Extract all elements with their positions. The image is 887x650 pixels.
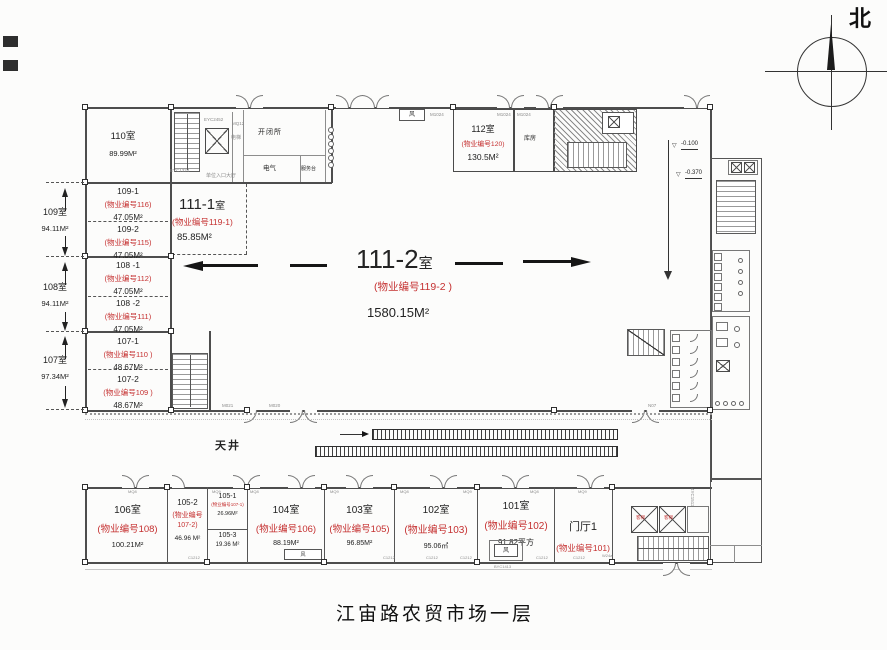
- room-area: 26.96M²: [208, 511, 247, 517]
- dim-area: 94.11M²: [30, 299, 80, 308]
- dim-arrow-up: [62, 188, 68, 197]
- room-area: 96.85M²: [325, 540, 394, 547]
- door-arc: [663, 563, 676, 576]
- dim-108-labels: 108室 94.11M²: [30, 280, 80, 312]
- room-area: 47.05M²: [88, 213, 168, 222]
- extent-arrow-left: [183, 261, 203, 271]
- dim-name: 107室: [30, 353, 80, 366]
- column: [328, 104, 334, 110]
- window-mark: C1212: [536, 556, 548, 561]
- sink: [739, 401, 744, 406]
- door-arc: [288, 475, 301, 488]
- room-area: 95.06㎡: [395, 541, 477, 551]
- compass-crosshair: [765, 71, 887, 72]
- staircase: [716, 180, 756, 234]
- door-arc: [677, 563, 690, 576]
- room-name: 111-1: [179, 196, 215, 213]
- courtyard-label: 天井: [215, 440, 241, 453]
- sink: [715, 401, 720, 406]
- wall: [85, 562, 712, 564]
- column: [82, 104, 88, 110]
- storage-label: 库房: [524, 136, 536, 143]
- hall-name: 111-2室: [356, 245, 433, 275]
- toilet-stall: [714, 273, 722, 281]
- vent-box: 风: [284, 549, 322, 560]
- dim-name: 108室: [30, 280, 80, 293]
- sink: [738, 258, 743, 263]
- toilet-stall: [672, 370, 680, 378]
- column: [450, 104, 456, 110]
- toilet-stall: [714, 263, 722, 271]
- fixture-circle: [328, 162, 334, 168]
- room-name-suffix: 室: [215, 201, 225, 212]
- column: [168, 328, 174, 334]
- dim-area: 94.11M²: [30, 224, 80, 233]
- window-mark: 4YC1512: [690, 488, 695, 507]
- door-mark: MQ9: [330, 490, 339, 495]
- wall: [85, 107, 87, 412]
- room-105-2-labels: 105-2 (物业编号107-2) 46.96 M²: [168, 498, 207, 546]
- window-mark: BYC1413: [494, 565, 511, 570]
- fixture-circle: [328, 155, 334, 161]
- dim-name: 109室: [30, 205, 80, 218]
- extent-arrow-line: [202, 264, 258, 267]
- sink: [738, 280, 743, 285]
- column: [321, 484, 327, 490]
- door-arc: [591, 475, 604, 488]
- room-name: 104室: [248, 501, 324, 516]
- column: [609, 559, 615, 565]
- door-arc: [362, 95, 375, 108]
- wall: [85, 410, 712, 412]
- room-112-labels: 112室 (物业编号120) 130.5M²: [453, 124, 513, 166]
- room-name: 107-1: [88, 336, 168, 346]
- door-mark: MQ8: [250, 490, 259, 495]
- north-label: 北: [849, 6, 871, 31]
- room-name: 101室: [478, 497, 554, 512]
- room-name: 109-2: [88, 224, 168, 234]
- wall: [85, 182, 332, 184]
- column: [244, 407, 250, 413]
- prop-number: (物业编号105): [325, 521, 394, 535]
- window-mark: C1212: [573, 556, 585, 561]
- vent-box: 风: [494, 544, 518, 557]
- prop-number: (物业编号107-1): [208, 502, 247, 508]
- toilet-stall: [714, 253, 722, 261]
- room-110-labels: 110室 89.99M²: [88, 128, 158, 162]
- sink: [734, 342, 740, 348]
- room-109-1-labels: 109-1 (物业编号116) 47.05M²: [88, 186, 168, 226]
- door-arc: [646, 410, 659, 423]
- door-arc: [304, 410, 317, 423]
- room-area: 46.96 M²: [168, 535, 207, 542]
- room-108-1-labels: 108 -1 (物业编号112) 47.05M²: [88, 260, 168, 300]
- fixture: [716, 338, 728, 347]
- door-arc: [172, 475, 185, 488]
- room-name: 111-2: [356, 244, 419, 274]
- unit-divider: [246, 184, 247, 254]
- door-arc: [632, 410, 645, 423]
- room-name: 109-1: [88, 186, 168, 196]
- room-105-3-labels: 105-3 19.36 M²: [208, 532, 247, 552]
- column: [168, 253, 174, 259]
- prop-number: (物业编号106): [248, 521, 324, 535]
- lobby-labels: 门厅1 (物业编号101): [551, 518, 615, 558]
- shaft-box: [744, 162, 755, 173]
- dim-area: 97.34M²: [30, 372, 80, 381]
- prop-number: (物业编号119-2 ): [374, 281, 452, 293]
- fixture-circle: [328, 134, 334, 140]
- flow-arrow-head: [664, 271, 672, 280]
- entrance-hall-label: 单位入口大厅: [206, 174, 236, 180]
- toilet-stall: [672, 382, 680, 390]
- toilet-stall: [714, 283, 722, 291]
- sink: [738, 291, 743, 296]
- dim-tick: [46, 256, 84, 257]
- prop-number: (物业编号102): [478, 517, 554, 532]
- room-area: 130.5M²: [453, 152, 513, 162]
- room-107-2-labels: 107-2 (物业编号109 ) 48.67M²: [88, 374, 168, 414]
- column: [164, 484, 170, 490]
- door-mark: N07: [648, 403, 656, 408]
- door-arc: [290, 410, 303, 423]
- dim-arrow-down: [62, 322, 68, 331]
- prop-number: (物业编号107-2): [168, 511, 207, 531]
- room-name: 105-2: [168, 498, 207, 507]
- wall: [243, 155, 325, 156]
- room-area: 85.85M²: [177, 233, 212, 244]
- dim-107-labels: 107室 97.34M²: [30, 353, 80, 385]
- wall: [710, 545, 762, 546]
- room-area: 19.36 M²: [208, 542, 247, 548]
- window-mark: C1212: [426, 556, 438, 561]
- prop-number: (物业编号115): [88, 237, 168, 248]
- dim-tick: [46, 182, 84, 183]
- sink: [731, 401, 736, 406]
- window-mark: C1212: [188, 556, 200, 561]
- door-arc: [516, 475, 529, 488]
- flow-arrow-line: [668, 140, 669, 272]
- escalator-arrow-line: [340, 434, 362, 435]
- room-area: 48.67M²: [88, 401, 168, 410]
- prop-number: (物业编号108): [88, 521, 167, 535]
- scan-mark: [3, 36, 18, 47]
- prop-number: (物业编号103): [395, 521, 477, 536]
- scan-mark: [3, 60, 18, 71]
- wall: [734, 545, 735, 563]
- window-mark: C1212: [383, 556, 395, 561]
- vent-label: 风: [409, 112, 415, 118]
- prop-number: (物业编号109 ): [88, 387, 168, 398]
- room-103-labels: 103室 (物业编号105) 96.85M²: [325, 501, 394, 551]
- room-name-suffix: 室: [419, 255, 433, 271]
- elevation-marker-icon: ▽: [672, 143, 677, 150]
- column: [609, 484, 615, 490]
- door-arc: [302, 475, 315, 488]
- extent-dash: [455, 262, 503, 265]
- room-109-2-labels: 109-2 (物业编号115) 47.05M²: [88, 224, 168, 264]
- escalator-arrow-head: [362, 431, 369, 437]
- room-area: 47.05M²: [88, 287, 168, 296]
- dim-arrow-down: [62, 399, 68, 408]
- room-name: 110室: [88, 128, 158, 142]
- wall: [85, 487, 87, 563]
- column: [474, 484, 480, 490]
- wall: [207, 529, 247, 530]
- elevation-marker-icon: ▽: [676, 172, 681, 179]
- extent-arrow-right: [571, 257, 591, 267]
- room-106-labels: 106室 (物业编号108) 100.21M²: [88, 501, 167, 553]
- door-mark: M021: [222, 403, 233, 408]
- elevator-shaft: [608, 116, 620, 128]
- shaft-box: [716, 360, 730, 372]
- dim-tick: [46, 409, 84, 410]
- column: [321, 559, 327, 565]
- prop-number: (物业编号119-1): [172, 218, 233, 228]
- door-mark: M1024: [517, 112, 531, 117]
- sink: [734, 326, 740, 332]
- room-name: 105-3: [208, 532, 247, 539]
- door-arc: [122, 475, 135, 488]
- room-105-1-labels: 105-1 (物业编号107-1) 26.96M²: [208, 493, 247, 521]
- wall: [209, 331, 211, 411]
- extent-arrow-line: [523, 260, 573, 263]
- room-102-labels: 102室 (物业编号103) 95.06㎡: [395, 501, 477, 555]
- fixture-circle: [328, 148, 334, 154]
- fixture-circle: [328, 141, 334, 147]
- switch-station-label: 开闭所: [258, 129, 282, 137]
- dim-line: [65, 386, 66, 400]
- stair-diagonal: [628, 330, 664, 355]
- prop-number: (物业编号112): [88, 273, 168, 284]
- door-arc: [236, 95, 249, 108]
- door-arc: [536, 95, 549, 108]
- door-mark: MQ9: [463, 490, 472, 495]
- dim-arrow-up: [62, 336, 68, 345]
- column: [168, 407, 174, 413]
- room-area: 48.67M²: [88, 363, 168, 372]
- door-mark: MQ12: [232, 121, 244, 126]
- sidewalk-line: [85, 569, 712, 570]
- column: [551, 104, 557, 110]
- door-mark: M020: [269, 403, 280, 408]
- room-area: 100.21M²: [88, 540, 167, 549]
- door-arc: [250, 95, 263, 108]
- column: [82, 407, 88, 413]
- toilet-stall: [672, 346, 680, 354]
- wall: [325, 110, 326, 182]
- escalator: [372, 429, 618, 440]
- staircase: [567, 142, 627, 168]
- prop-number: (物业编号120): [453, 138, 513, 148]
- column: [204, 559, 210, 565]
- door-mark: EYC2452: [204, 117, 223, 122]
- stair-rail: [637, 548, 709, 549]
- room-108-2-labels: 108 -2 (物业编号111) 47.05M²: [88, 298, 168, 338]
- room-name: 102室: [395, 501, 477, 516]
- door-arc: [497, 95, 510, 108]
- north-arrow-icon: [827, 24, 835, 70]
- prop-number: (物业编号110 ): [88, 349, 168, 360]
- vent-box: 风: [399, 109, 425, 121]
- door-arc: [360, 475, 373, 488]
- dim-109-labels: 109室 94.11M²: [30, 205, 80, 237]
- door-mark: MQ8: [530, 490, 539, 495]
- vent-label: 风: [503, 548, 509, 554]
- floor-plan: 北 开闭所 电气 服务台 电梯 单位入口大厅 EYC2452 MQ12 EYC1…: [0, 0, 887, 650]
- room-area: 47.05M²: [88, 325, 168, 334]
- window-mark: C1212: [460, 556, 472, 561]
- shaft-box: [687, 506, 709, 533]
- hall-area: 1580.15M²: [367, 306, 429, 321]
- room-111-1-name: 111-1室: [179, 196, 225, 213]
- toilet-stall: [672, 334, 680, 342]
- column: [707, 559, 713, 565]
- column: [168, 104, 174, 110]
- room-name: 门厅1: [551, 518, 615, 534]
- toilet-stall: [672, 358, 680, 366]
- extent-dash: [290, 264, 327, 267]
- sink: [723, 401, 728, 406]
- door-arc: [444, 475, 457, 488]
- column: [82, 484, 88, 490]
- door-arc: [136, 475, 149, 488]
- toilet-stall: [714, 293, 722, 301]
- door-mark: M1024: [497, 112, 511, 117]
- right-wing-bottom: [710, 478, 762, 563]
- dim-tick: [46, 331, 84, 332]
- lift-label: 客梯: [664, 515, 673, 520]
- elevator-label: 电梯: [231, 136, 241, 142]
- door-mark: MQ9: [212, 490, 221, 495]
- electrical-room-label: 电气: [263, 165, 276, 172]
- room-area: 88.19M²: [248, 540, 324, 547]
- door-arc: [577, 475, 590, 488]
- toilet-stall: [672, 394, 680, 402]
- fixture-circle: [328, 127, 334, 133]
- column: [391, 484, 397, 490]
- door-arc: [502, 475, 515, 488]
- courtyard-rail: [85, 419, 712, 420]
- door-mark: EYC1324: [170, 168, 189, 173]
- column: [707, 104, 713, 110]
- lift-label: 客梯: [636, 515, 645, 520]
- door-arc: [346, 475, 359, 488]
- column: [474, 559, 480, 565]
- prop-number: (物业编号111): [88, 311, 168, 322]
- room-name: 106室: [88, 501, 167, 516]
- door-mark: MQ9: [578, 490, 587, 495]
- room-name: 108 -1: [88, 260, 168, 270]
- room-name: 112室: [453, 124, 513, 134]
- escalator: [315, 446, 618, 457]
- window-mark: W24a: [602, 554, 612, 559]
- room-area: 47.05M²: [88, 251, 168, 260]
- door-arc: [511, 95, 524, 108]
- door-arc: [336, 95, 349, 108]
- room-name: 103室: [325, 501, 394, 516]
- door-mark: MQ8: [128, 490, 137, 495]
- door-mark: MQ8: [400, 490, 409, 495]
- stair-rail: [190, 355, 191, 407]
- compass: 北: [765, 0, 887, 140]
- fixture: [716, 322, 728, 331]
- elevation-value: -0.370: [685, 170, 702, 179]
- dim-arrow-down: [62, 247, 68, 256]
- escalator-stair: [627, 329, 665, 356]
- room-107-1-labels: 107-1 (物业编号110 ) 48.67M²: [88, 336, 168, 376]
- prop-number: (物业编号116): [88, 199, 168, 210]
- sink: [738, 269, 743, 274]
- stair-rail: [187, 114, 188, 170]
- column: [82, 559, 88, 565]
- courtyard-rail: [85, 413, 712, 415]
- door-arc: [684, 95, 697, 108]
- room-name: 108 -2: [88, 298, 168, 308]
- room-name: 107-2: [88, 374, 168, 384]
- toilet-stall: [714, 303, 722, 311]
- shaft-box: [731, 162, 742, 173]
- column: [551, 407, 557, 413]
- service-desk-label: 服务台: [301, 167, 316, 173]
- room-area: 89.99M²: [88, 149, 158, 158]
- page-title: 江宙路农贸市场一层: [85, 604, 785, 626]
- vent-label: 风: [300, 552, 305, 558]
- dim-arrow-up: [62, 262, 68, 271]
- elevator-shaft: [205, 128, 229, 154]
- column: [244, 484, 250, 490]
- unit-divider: [172, 254, 247, 255]
- door-mark: M1024: [430, 112, 444, 117]
- elevation-value: -0.100: [681, 141, 698, 150]
- column: [707, 407, 713, 413]
- room-104-labels: 104室 (物业编号106) 88.19M²: [248, 501, 324, 551]
- door-arc: [430, 475, 443, 488]
- door-arc: [376, 95, 389, 108]
